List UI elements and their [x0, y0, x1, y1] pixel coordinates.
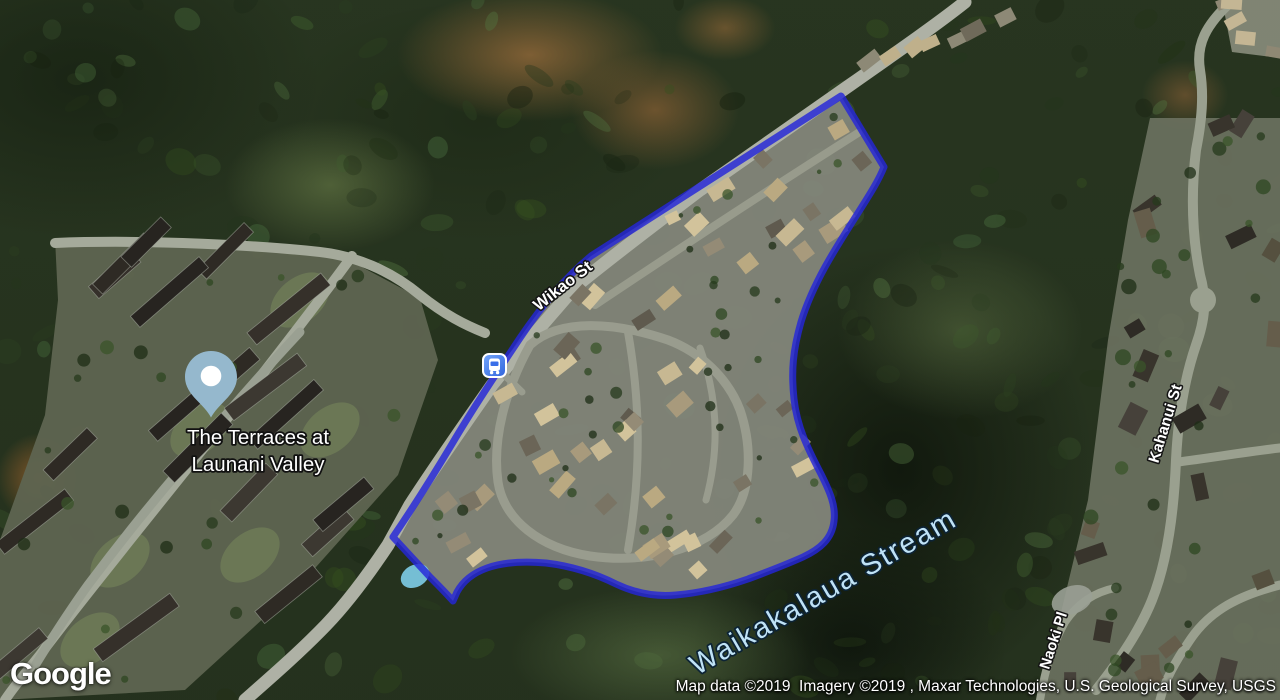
place-label-line1: The Terraces at — [187, 426, 329, 449]
map-overlay: Wikao St Kahanui St Naoki Pl Waikakalaua… — [0, 0, 1280, 700]
place-pin-dot — [201, 366, 222, 387]
bus-stop-icon[interactable] — [483, 354, 506, 377]
attribution-text: Map data ©2019 Imagery ©2019 , Maxar Tec… — [676, 678, 1276, 696]
place-label-line2: Launani Valley — [192, 453, 326, 476]
google-logo[interactable]: Google — [10, 656, 111, 692]
map-canvas[interactable]: Wikao St Kahanui St Naoki Pl Waikakalaua… — [0, 0, 1280, 700]
